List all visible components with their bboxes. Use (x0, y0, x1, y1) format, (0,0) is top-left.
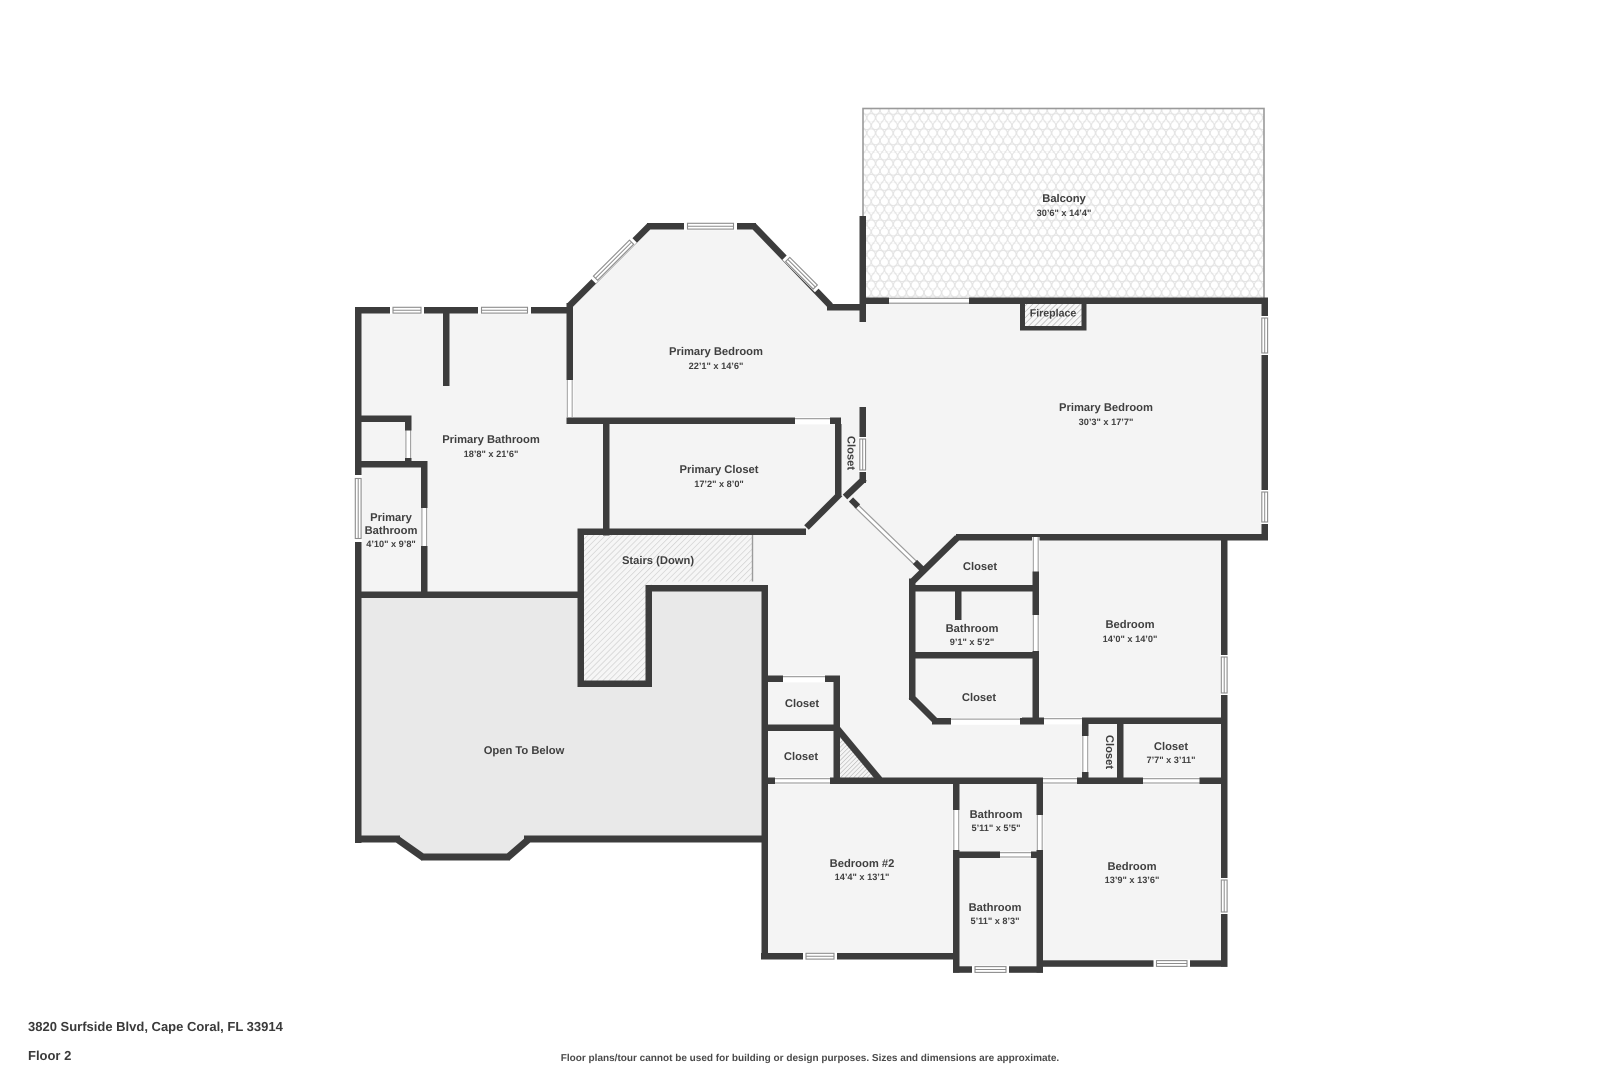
svg-text:4’10" x 9’8": 4’10" x 9’8" (366, 539, 416, 549)
svg-text:5’11" x 8’3": 5’11" x 8’3" (970, 916, 1019, 926)
svg-text:Primary Bedroom: Primary Bedroom (1059, 402, 1153, 414)
svg-text:14’0" x 14’0": 14’0" x 14’0" (1103, 634, 1158, 644)
svg-text:30’6" x 14’4": 30’6" x 14’4" (1037, 208, 1092, 218)
svg-text:Closet: Closet (784, 751, 818, 763)
svg-text:Closet: Closet (785, 698, 819, 710)
svg-text:Closet: Closet (1154, 741, 1188, 753)
svg-text:18’8" x 21’6": 18’8" x 21’6" (464, 449, 519, 459)
svg-text:Primary Bedroom: Primary Bedroom (669, 346, 763, 358)
svg-text:14’4" x 13’1": 14’4" x 13’1" (835, 872, 890, 882)
svg-text:Primary: Primary (370, 512, 412, 524)
svg-text:3820 Surfside Blvd, Cape Coral: 3820 Surfside Blvd, Cape Coral, FL 33914 (28, 1019, 284, 1034)
svg-text:Bedroom: Bedroom (1105, 619, 1154, 631)
svg-text:Bathroom: Bathroom (970, 809, 1023, 821)
svg-text:Bedroom #2: Bedroom #2 (830, 858, 895, 870)
svg-text:Closet: Closet (1103, 735, 1115, 769)
svg-text:Floor plans/tour cannot be use: Floor plans/tour cannot be used for buil… (561, 1053, 1060, 1064)
svg-text:9’1" x 5’2": 9’1" x 5’2" (950, 637, 994, 647)
svg-text:Bathroom: Bathroom (969, 902, 1022, 914)
svg-text:30’3" x 17’7": 30’3" x 17’7" (1079, 417, 1134, 427)
svg-text:Fireplace: Fireplace (1030, 308, 1077, 320)
svg-text:Open To Below: Open To Below (484, 745, 565, 757)
svg-text:Balcony: Balcony (1042, 193, 1086, 205)
svg-text:Stairs (Down): Stairs (Down) (622, 555, 694, 567)
svg-text:Closet: Closet (962, 692, 996, 704)
svg-text:7’7" x 3’11": 7’7" x 3’11" (1146, 755, 1195, 765)
svg-text:13’9" x 13’6": 13’9" x 13’6" (1105, 875, 1160, 885)
svg-text:Floor 2: Floor 2 (28, 1048, 71, 1063)
svg-text:Bathroom: Bathroom (946, 623, 999, 635)
svg-text:Closet: Closet (845, 436, 857, 470)
svg-text:Bedroom: Bedroom (1107, 861, 1156, 873)
svg-text:22’1" x 14’6": 22’1" x 14’6" (689, 361, 744, 371)
svg-text:Primary Closet: Primary Closet (680, 464, 759, 476)
svg-text:Primary Bathroom: Primary Bathroom (442, 434, 540, 446)
svg-text:17’2" x 8’0": 17’2" x 8’0" (694, 479, 744, 489)
svg-text:Closet: Closet (963, 561, 997, 573)
svg-text:5’11" x 5’5": 5’11" x 5’5" (971, 823, 1020, 833)
svg-text:Bathroom: Bathroom (365, 525, 418, 537)
